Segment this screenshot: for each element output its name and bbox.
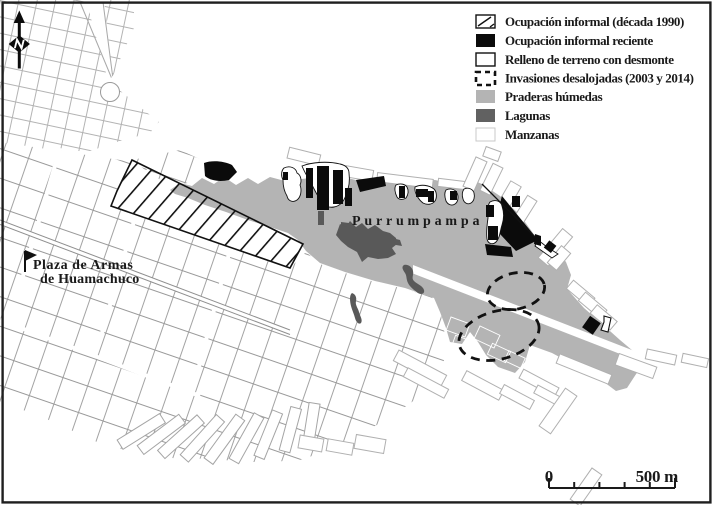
svg-text:Relleno de terreno con desmont: Relleno de terreno con desmonte [505, 52, 674, 67]
svg-text:Purrumpampa: Purrumpampa [352, 214, 483, 229]
svg-text:Plaza de Armas: Plaza de Armas [33, 258, 133, 273]
svg-text:Ocupación informal (década 199: Ocupación informal (década 1990) [505, 14, 684, 29]
svg-text:Ocupación informal reciente: Ocupación informal reciente [505, 33, 653, 48]
svg-text:0: 0 [545, 467, 554, 486]
svg-text:Praderas húmedas: Praderas húmedas [505, 89, 603, 104]
svg-text:de Huamachuco: de Huamachuco [40, 272, 139, 287]
svg-text:Invasiones desalojadas (2003 y: Invasiones desalojadas (2003 y 2014) [505, 71, 694, 86]
svg-text:Manzanas: Manzanas [505, 127, 559, 142]
svg-text:500 m: 500 m [636, 467, 679, 486]
svg-text:Lagunas: Lagunas [505, 108, 550, 123]
